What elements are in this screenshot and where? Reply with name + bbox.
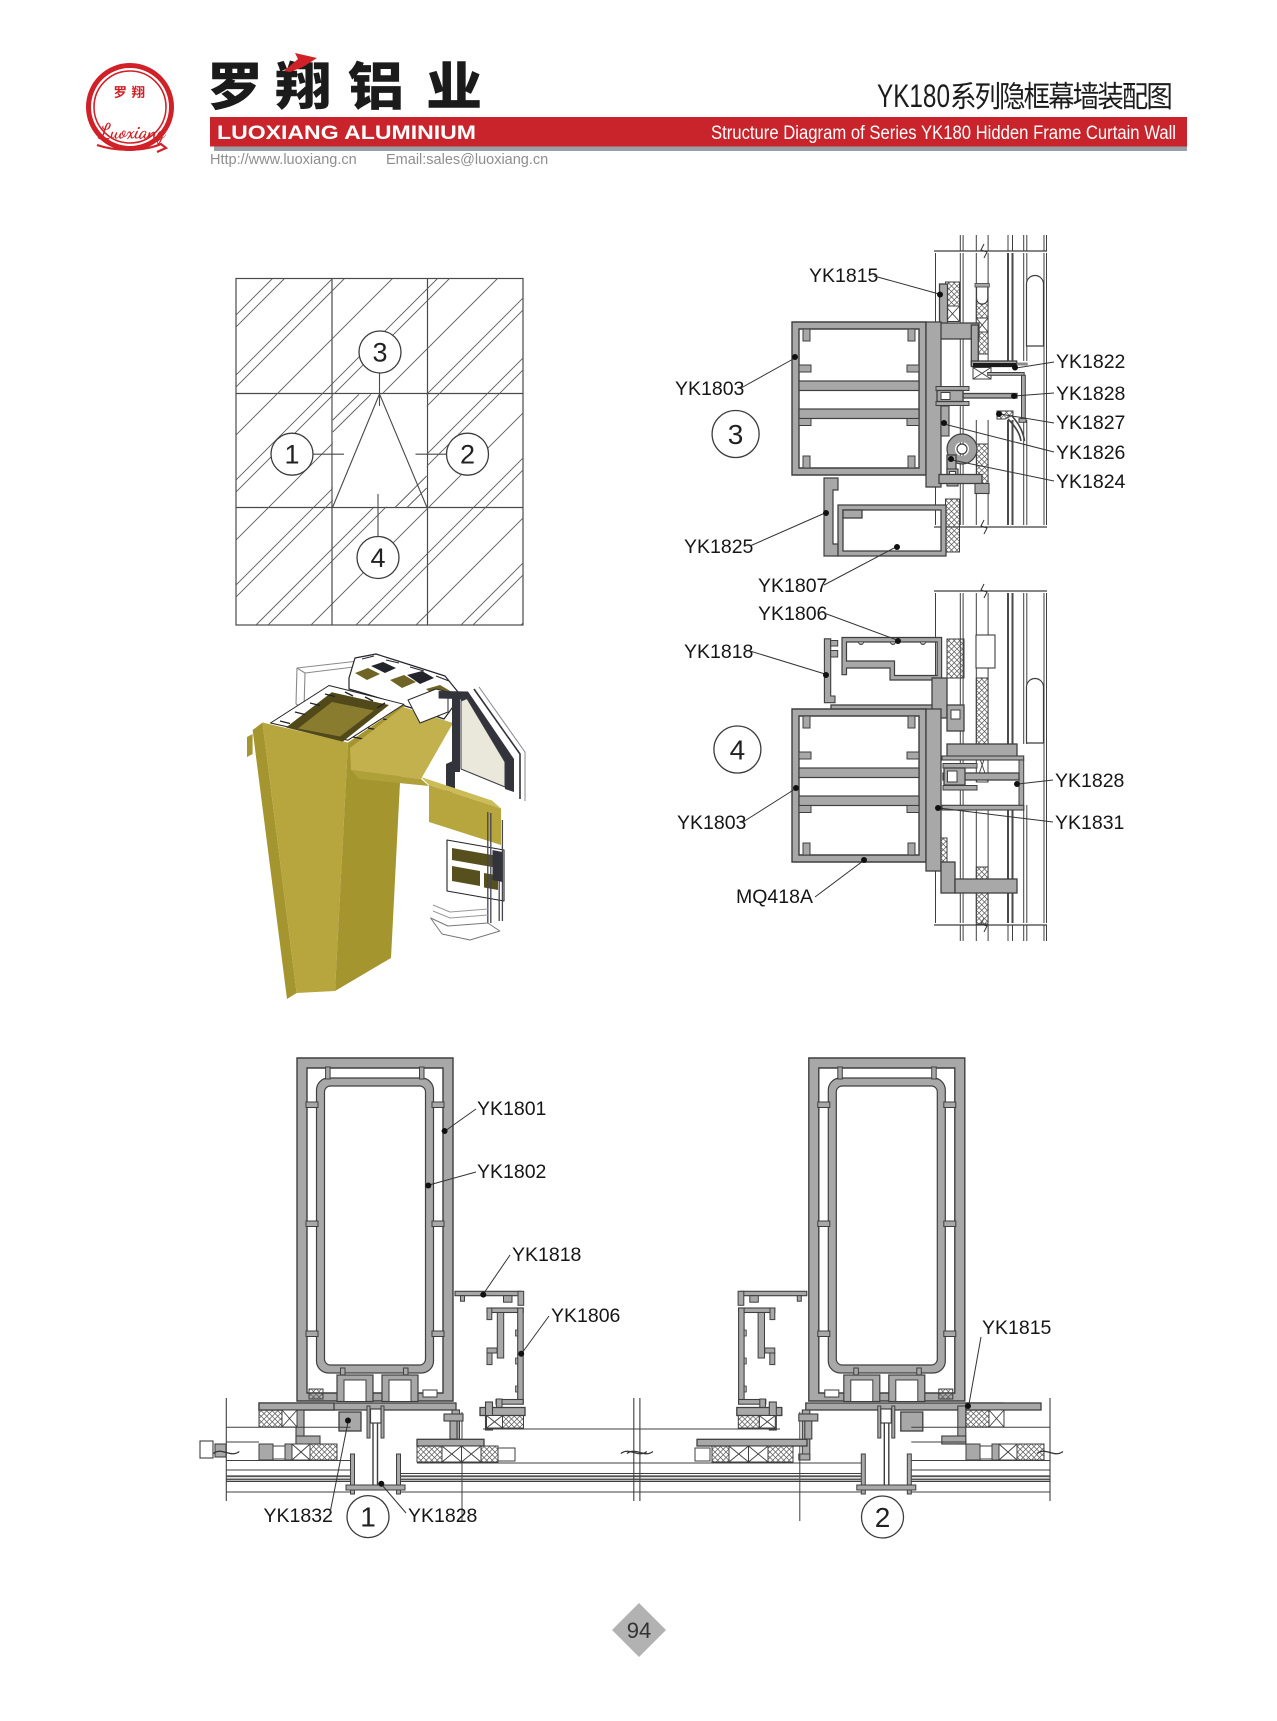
svg-text:YK1807: YK1807 [758, 575, 827, 597]
svg-text:2: 2 [875, 1502, 891, 1533]
svg-text:MQ418A: MQ418A [736, 886, 813, 908]
svg-text:YK1827: YK1827 [1056, 412, 1125, 434]
svg-text:YK1831: YK1831 [1055, 812, 1124, 834]
svg-text:YK1828: YK1828 [408, 1505, 477, 1527]
svg-text:YK1802: YK1802 [477, 1161, 546, 1183]
svg-text:YK1826: YK1826 [1056, 442, 1125, 464]
svg-text:YK1815: YK1815 [982, 1317, 1052, 1339]
svg-text:YK1806: YK1806 [551, 1305, 620, 1327]
svg-text:YK180: YK180 [877, 79, 950, 115]
svg-text:LUOXIANG ALUMINIUM: LUOXIANG ALUMINIUM [217, 122, 476, 144]
svg-text:Structure Diagram of Series YK: Structure Diagram of Series YK180 Hidden… [711, 123, 1176, 144]
svg-text:YK1832: YK1832 [264, 1505, 333, 1527]
svg-text:YK1801: YK1801 [477, 1098, 546, 1120]
svg-text:YK1803: YK1803 [675, 378, 744, 400]
svg-text:YK1818: YK1818 [512, 1244, 581, 1266]
svg-text:YK1824: YK1824 [1056, 471, 1126, 493]
svg-text:YK1806: YK1806 [758, 603, 827, 625]
svg-text:YK1828: YK1828 [1056, 383, 1125, 405]
svg-text:4: 4 [730, 735, 746, 766]
svg-text:4: 4 [370, 543, 385, 573]
svg-text:YK1828: YK1828 [1055, 770, 1124, 792]
svg-text:3: 3 [728, 419, 744, 450]
svg-text:94: 94 [627, 1618, 651, 1643]
svg-text:YK1803: YK1803 [677, 812, 746, 834]
svg-text:2: 2 [460, 440, 475, 470]
svg-text:1: 1 [284, 440, 299, 470]
svg-text:YK1815: YK1815 [809, 265, 879, 287]
svg-text:1: 1 [360, 1502, 376, 1533]
svg-text:YK1825: YK1825 [684, 536, 754, 558]
svg-text:Email:sales@luoxiang.cn: Email:sales@luoxiang.cn [386, 152, 548, 168]
svg-text:YK1822: YK1822 [1056, 351, 1125, 373]
svg-text:YK1818: YK1818 [684, 641, 753, 663]
svg-text:Http://www.luoxiang.cn: Http://www.luoxiang.cn [210, 152, 357, 168]
svg-text:3: 3 [372, 338, 387, 368]
